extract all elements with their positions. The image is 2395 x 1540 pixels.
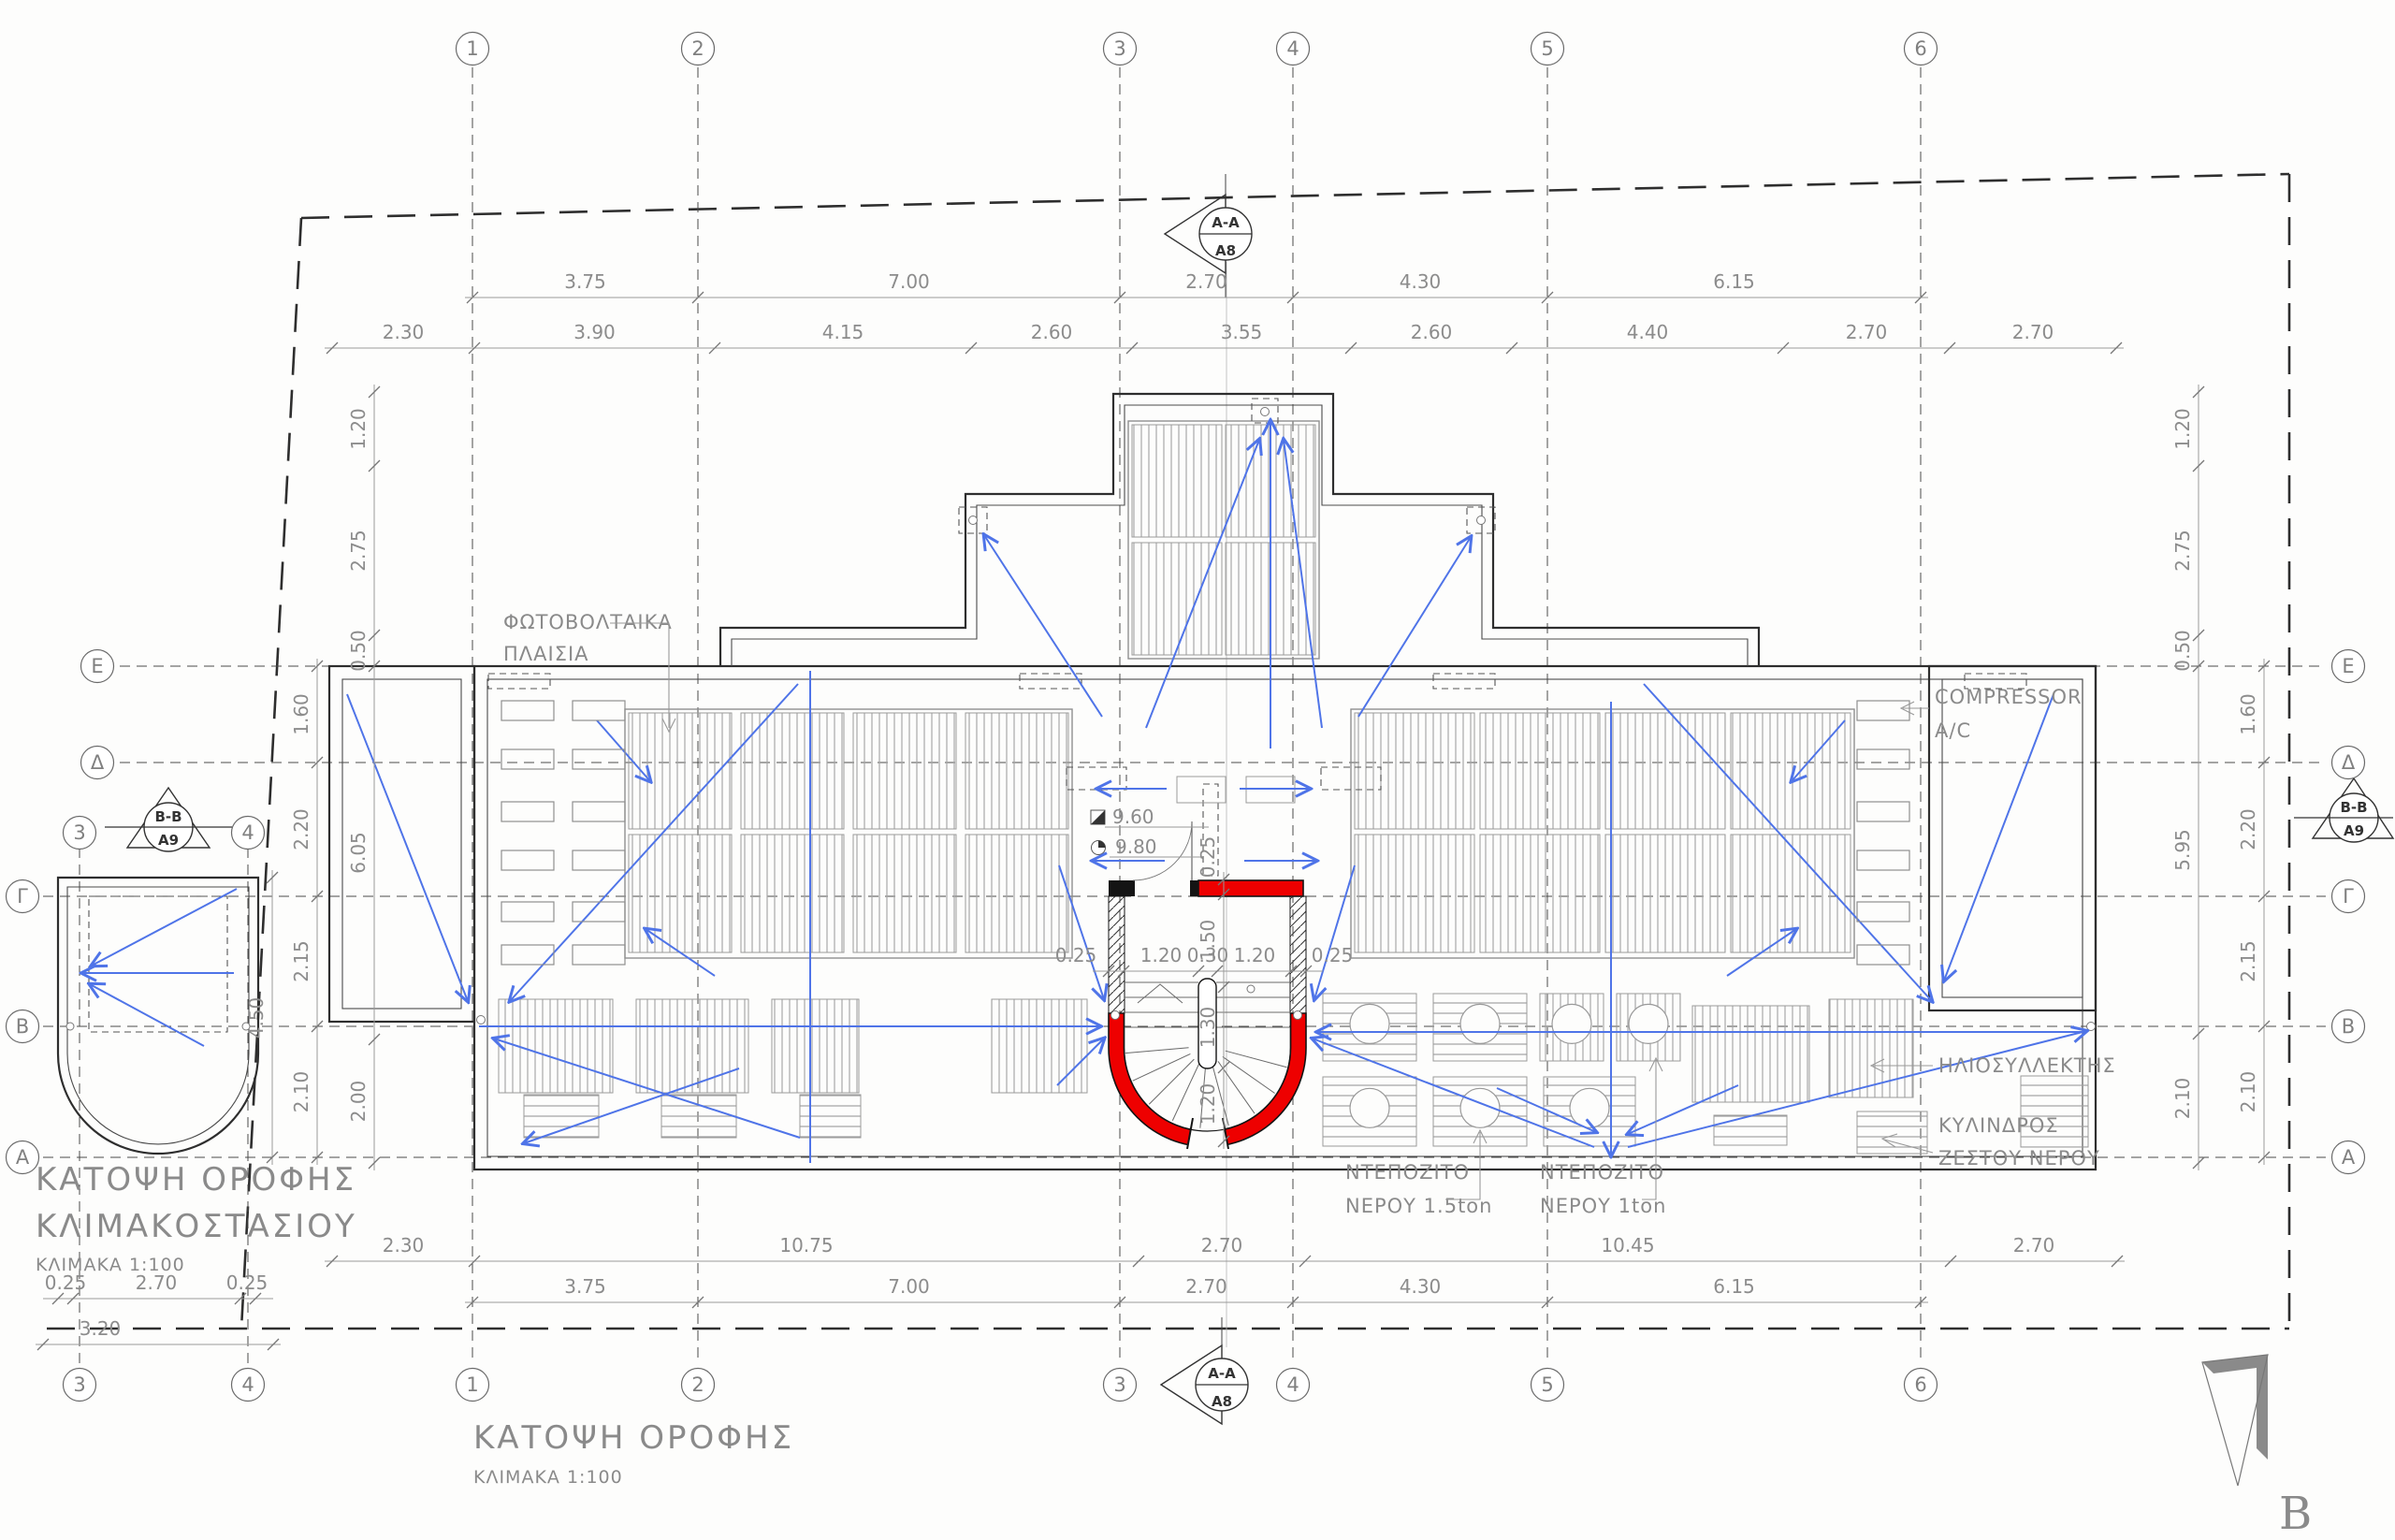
grid-bubble-label: Γ xyxy=(2343,885,2354,908)
dim-label: 2.10 xyxy=(2237,1071,2259,1113)
dim-label: 2.15 xyxy=(290,940,312,982)
dim-label: 0.25 xyxy=(226,1271,269,1294)
dim-label: 1.20 xyxy=(1197,1083,1219,1126)
grid-bubble-label: 3 xyxy=(73,821,85,844)
grid-bubble-label: 3 xyxy=(73,1373,85,1396)
dim-label: 6.15 xyxy=(1713,1275,1755,1298)
grid-bubble-label: 5 xyxy=(1541,37,1553,60)
dim-label: 0.25 xyxy=(1312,944,1354,966)
dim-label: 1.20 xyxy=(1234,944,1276,966)
dim-label: 4.50 xyxy=(245,997,268,1039)
section-bb-label: B-B xyxy=(2340,799,2367,816)
grid-bubble: 5 xyxy=(1531,1369,1564,1402)
roof-drain xyxy=(1111,1011,1120,1020)
drain-arrow xyxy=(1314,865,1355,999)
dim-label: 4.30 xyxy=(1400,270,1442,293)
north-label: Β xyxy=(2279,1488,2312,1540)
dim-label: 2.70 xyxy=(1185,270,1227,293)
dim-label: 3.75 xyxy=(564,1275,606,1298)
dim-label: 10.45 xyxy=(1601,1234,1654,1257)
grid-bubble-label: 4 xyxy=(1286,37,1299,60)
ac-unit xyxy=(501,902,554,922)
water-tank xyxy=(1544,1077,1635,1146)
level-lower: 9.80 xyxy=(1115,835,1157,858)
section-bb-sheet: A9 xyxy=(2344,822,2364,839)
grid-bubble-label: 6 xyxy=(1914,1373,1926,1396)
dim-label: 1.20 xyxy=(347,408,370,450)
ac-unit xyxy=(573,749,625,769)
grid-bubble: 1 xyxy=(457,1369,489,1402)
ac-unit xyxy=(573,701,625,720)
ac-unit xyxy=(501,850,554,870)
grid-bubble: 6 xyxy=(1905,33,1938,65)
roof-drain xyxy=(1261,408,1270,416)
dim-label: 0.25 xyxy=(1197,836,1219,879)
section-marker-bb-left: B-B A9 xyxy=(105,788,232,851)
grid-bubble: 4 xyxy=(1277,33,1310,65)
photovoltaic-array-left xyxy=(625,709,1072,958)
section-bb-sheet: A9 xyxy=(158,832,179,849)
drain-arrow xyxy=(90,984,204,1046)
grid-bubble: Β xyxy=(2332,1010,2365,1043)
dim-label: 2.70 xyxy=(2013,1234,2055,1257)
drawing-canvas: 9.60 9.80 A-A A8 xyxy=(0,0,2395,1540)
dim-label: 3.20 xyxy=(80,1317,122,1340)
grid-bubble: Α xyxy=(2332,1141,2365,1174)
grid-bubble: 3 xyxy=(1104,1369,1137,1402)
grid-bubble: Δ xyxy=(81,747,114,779)
roof-plan-drawing: 9.60 9.80 A-A A8 xyxy=(0,0,2395,1540)
dim-label: 0.50 xyxy=(347,630,370,672)
dim-label: 0.50 xyxy=(2171,630,2194,672)
section-marker-bb-right: B-B A9 xyxy=(2294,778,2393,842)
dim-label: 2.75 xyxy=(2171,530,2194,572)
dim-label: 10.75 xyxy=(779,1234,833,1257)
roof-drain xyxy=(1294,1011,1302,1020)
ac-unit xyxy=(573,945,625,965)
drain-arrow xyxy=(984,535,1102,717)
grid-bubble: Ε xyxy=(81,650,114,683)
pv-label-line1: ΦΩΤΟΒΟΛΤΑΙΚΑ xyxy=(503,611,673,633)
ac-unit xyxy=(1857,701,1909,720)
dim-label: 2.70 xyxy=(2012,321,2054,343)
grid-bubbles: 112233445566ΕΕΔΔΓΓΒΒΑΑ3434 xyxy=(7,33,2365,1402)
tank10-label-line2: ΝΕΡΟΥ 1ton xyxy=(1540,1195,1666,1217)
water-tank xyxy=(1433,994,1527,1061)
dim-label: 1.20 xyxy=(1140,944,1183,966)
grid-bubble: 4 xyxy=(232,817,265,850)
grid-bubble-label: 4 xyxy=(1286,1373,1299,1396)
dim-label: 2.00 xyxy=(347,1081,370,1123)
grid-bubble: Γ xyxy=(7,880,39,913)
grid-bubble: Δ xyxy=(2332,747,2365,779)
dim-label: 2.60 xyxy=(1411,321,1453,343)
dim-label: 1.20 xyxy=(2171,408,2194,450)
roof-drain xyxy=(477,1016,486,1024)
dim-label: 2.30 xyxy=(383,1234,425,1257)
dim-label: 2.10 xyxy=(290,1071,312,1113)
grid-bubble-label: 1 xyxy=(466,37,478,60)
dim-label: 4.30 xyxy=(1400,1275,1442,1298)
main-scale: ΚΛΙΜΑΚΑ 1:100 xyxy=(473,1467,623,1488)
water-tank xyxy=(1323,994,1416,1061)
solar-collector-label: ΗΛΙΟΣΥΛΛΕΚΤΗΣ xyxy=(1938,1054,2116,1077)
dim-label: 2.70 xyxy=(1185,1275,1227,1298)
grid-bubble: 1 xyxy=(457,33,489,65)
tank15-label-line1: ΝΤΕΠΟΖΙΤΟ xyxy=(1345,1161,1470,1184)
section-aa-sheet: A8 xyxy=(1215,242,1236,259)
grid-bubble-label: 5 xyxy=(1541,1373,1553,1396)
water-tanks xyxy=(1323,994,1680,1146)
north-arrow: Β xyxy=(2202,1355,2312,1540)
grid-bubble-label: 1 xyxy=(466,1373,478,1396)
dim-label: 3.90 xyxy=(573,321,616,343)
grid-bubble: Γ xyxy=(2332,880,2365,913)
detail-title-line1: ΚΑΤΟΨΗ ΟΡΟΦΗΣ xyxy=(36,1161,356,1199)
level-upper: 9.60 xyxy=(1112,806,1154,828)
dim-label: 1.60 xyxy=(290,693,312,735)
ac-unit xyxy=(573,802,625,821)
main-title: ΚΑΤΟΨΗ ΟΡΟΦΗΣ xyxy=(473,1419,794,1457)
compressor-label-line1: COMPRESSOR xyxy=(1935,686,2083,708)
ac-unit xyxy=(573,850,625,870)
dim-label: 2.70 xyxy=(1201,1234,1243,1257)
grid-bubble-label: Ε xyxy=(91,655,103,677)
dim-label: 1.60 xyxy=(2237,693,2259,735)
roof-drain xyxy=(1477,516,1486,525)
ac-unit xyxy=(1857,902,1909,922)
compressor-label-line2: A/C xyxy=(1935,719,1971,742)
ac-unit xyxy=(501,749,554,769)
dim-label: 2.60 xyxy=(1031,321,1073,343)
tank15-label-line2: ΝΕΡΟΥ 1.5ton xyxy=(1345,1195,1492,1217)
dim-label: 2.15 xyxy=(2237,940,2259,982)
grid-bubble-label: 6 xyxy=(1914,37,1926,60)
grid-bubble-label: 3 xyxy=(1113,1373,1125,1396)
dim-label: 2.70 xyxy=(1846,321,1888,343)
stair-top-wall-red xyxy=(1198,880,1303,896)
drain-arrow xyxy=(1358,537,1471,717)
grid-bubble-label: Β xyxy=(2342,1015,2355,1038)
dim-label: 2.70 xyxy=(136,1271,178,1294)
grid-bubble-label: Α xyxy=(16,1146,30,1169)
section-aa-sheet: A8 xyxy=(1212,1393,1232,1410)
dim-label: 2.30 xyxy=(383,321,425,343)
grid-bubble: 4 xyxy=(232,1369,265,1402)
roof-drain xyxy=(969,516,978,525)
grid-bubble: 3 xyxy=(64,817,96,850)
roof-drain xyxy=(2087,1023,2096,1031)
grid-bubble-label: 4 xyxy=(241,821,254,844)
dim-label: 7.00 xyxy=(888,1275,930,1298)
photovoltaic-array-tower xyxy=(1128,421,1319,659)
grid-bubble-label: Δ xyxy=(2342,751,2356,774)
dim-label: 2.20 xyxy=(2237,808,2259,850)
grid-bubble: 2 xyxy=(682,1369,715,1402)
tank10-label-line1: ΝΤΕΠΟΖΙΤΟ xyxy=(1540,1161,1664,1184)
grid-bubble-label: 2 xyxy=(691,37,704,60)
ac-unit xyxy=(1857,802,1909,821)
detail-title-line2: ΚΛΙΜΑΚΟΣΤΑΣΙΟΥ xyxy=(36,1208,357,1245)
dim-label: 1.50 xyxy=(1197,920,1219,962)
ac-unit xyxy=(573,902,625,922)
drain-arrow xyxy=(92,889,237,966)
dim-label: 3.55 xyxy=(1221,321,1263,343)
ac-unit xyxy=(1857,850,1909,870)
grid-bubble: 3 xyxy=(1104,33,1137,65)
ac-unit xyxy=(501,701,554,720)
pv-label-line2: ΠΛΑΙΣΙΑ xyxy=(503,643,589,665)
grid-bubble: 2 xyxy=(682,33,715,65)
stairwell-detail xyxy=(58,878,258,1154)
section-marker-aa-bottom: A-A A8 xyxy=(1161,1317,1248,1424)
grid-bubble-label: 2 xyxy=(691,1373,704,1396)
dim-label: 6.15 xyxy=(1713,270,1755,293)
dim-label: 2.20 xyxy=(290,808,312,850)
water-tank xyxy=(1540,994,1604,1061)
titles: ΚΑΤΟΨΗ ΟΡΟΦΗΣ ΚΛΙΜΑΚΑ 1:100 ΚΑΤΟΨΗ ΟΡΟΦΗ… xyxy=(36,1161,794,1488)
ac-unit xyxy=(1857,749,1909,769)
grid-bubble-label: 4 xyxy=(241,1373,254,1396)
dim-label: 4.15 xyxy=(822,321,864,343)
dim-label: 6.05 xyxy=(347,832,370,874)
dim-label: 2.10 xyxy=(2171,1078,2194,1120)
grid-bubble: Ε xyxy=(2332,650,2365,683)
dim-label: 4.40 xyxy=(1627,321,1669,343)
cylinder-label-line2: ΖΕΣΤΟΥ ΝΕΡΟΥ xyxy=(1938,1147,2100,1170)
grid-bubble: Α xyxy=(7,1141,39,1174)
dim-label: 1.30 xyxy=(1197,1007,1219,1049)
grid-bubble-label: Ε xyxy=(2342,655,2354,677)
grid-bubble-label: Α xyxy=(2342,1146,2356,1169)
grid-bubble: Β xyxy=(7,1010,39,1043)
grid-bubble: 4 xyxy=(1277,1369,1310,1402)
dim-label: 7.00 xyxy=(888,270,930,293)
ac-unit xyxy=(501,802,554,821)
water-tank xyxy=(1617,994,1680,1061)
grid-bubble-label: Β xyxy=(16,1015,29,1038)
section-aa-label: A-A xyxy=(1212,214,1240,231)
section-aa-label: A-A xyxy=(1208,1365,1236,1382)
grid-bubble: 6 xyxy=(1905,1369,1938,1402)
grid-bubble: 5 xyxy=(1531,33,1564,65)
dim-label: 0.25 xyxy=(45,1271,87,1294)
grid-bubble-label: Δ xyxy=(91,751,105,774)
grid-bubble-label: 3 xyxy=(1113,37,1125,60)
section-bb-label: B-B xyxy=(154,808,181,825)
grid-bubble: 3 xyxy=(64,1369,96,1402)
grid-bubble-label: Γ xyxy=(17,885,28,908)
dim-label: 2.75 xyxy=(347,530,370,572)
water-tank xyxy=(1323,1077,1416,1146)
dim-label: 5.95 xyxy=(2171,829,2194,871)
cylinder-label-line1: ΚΥΛΙΝΔΡΟΣ xyxy=(1938,1114,2059,1137)
dim-label: 0.25 xyxy=(1055,944,1097,966)
dim-label: 3.75 xyxy=(564,270,606,293)
